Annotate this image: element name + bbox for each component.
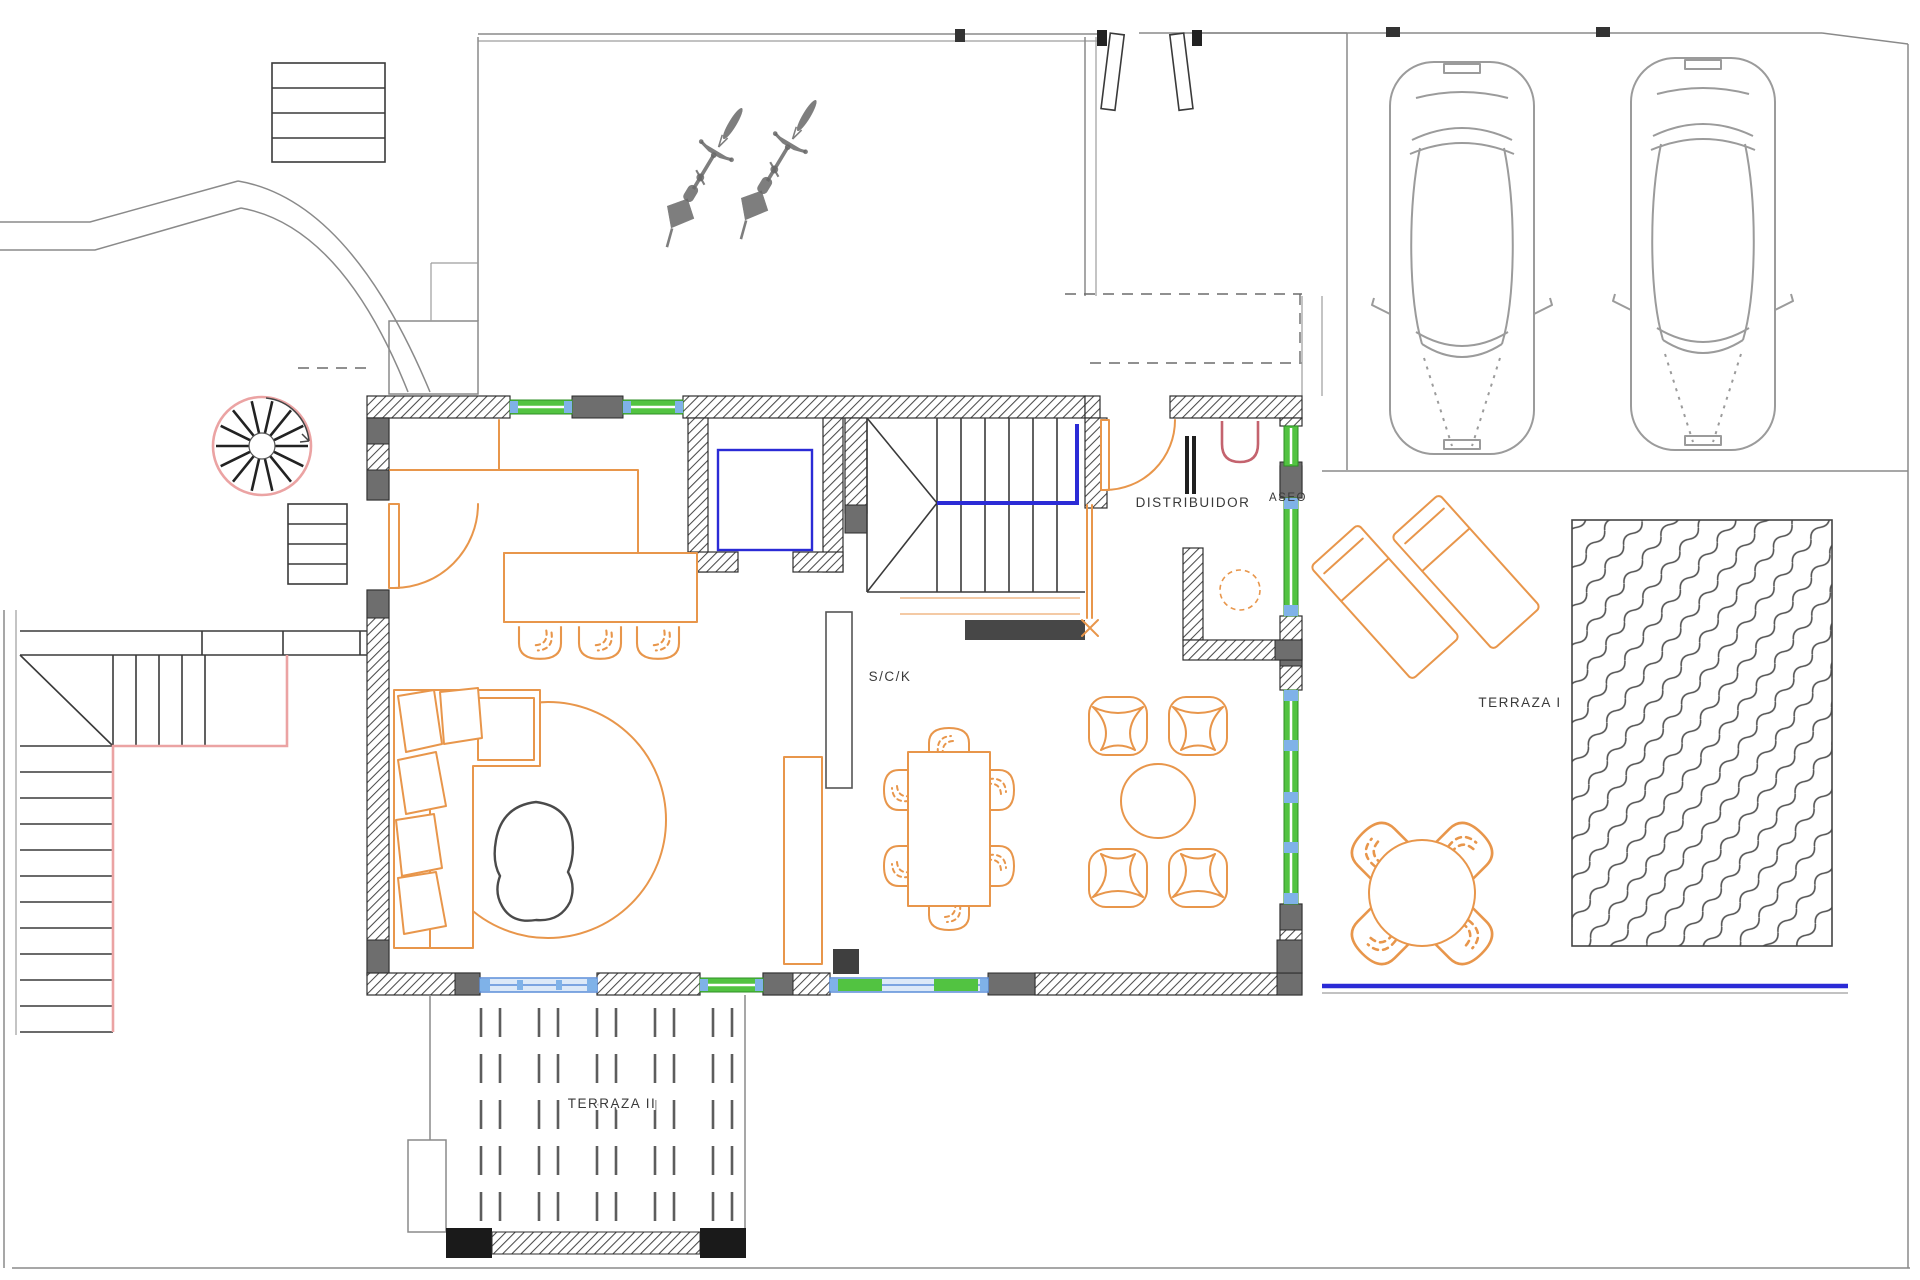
bar-stools bbox=[519, 626, 679, 659]
fence-post bbox=[1386, 27, 1400, 37]
decking bbox=[452, 1000, 742, 1226]
spiral-staircase bbox=[213, 368, 367, 495]
label-distribuidor: DISTRIBUIDOR bbox=[1136, 495, 1251, 510]
car-1 bbox=[1372, 62, 1552, 454]
stair-edge-pink bbox=[113, 655, 287, 1032]
curved-wall-inner bbox=[241, 208, 408, 392]
parking-area bbox=[1322, 33, 1908, 471]
terrace-1: TERRAZA I bbox=[1310, 494, 1848, 993]
sun-lounger-1 bbox=[1310, 524, 1459, 680]
washbasin bbox=[1222, 421, 1258, 462]
living-area bbox=[394, 612, 859, 974]
entry-door bbox=[389, 504, 478, 588]
dining-table bbox=[908, 752, 990, 906]
floor-plan-drawing: DISTRIBUIDOR ASEO bbox=[0, 0, 1920, 1280]
paving bbox=[1572, 520, 1832, 946]
terrace-2: TERRAZA II bbox=[408, 995, 746, 1258]
stair-railing bbox=[937, 424, 1077, 503]
floor-plan: DISTRIBUIDOR ASEO bbox=[0, 0, 1920, 1280]
armchair-group bbox=[1089, 697, 1227, 907]
exterior-staircase bbox=[20, 631, 367, 1032]
fence-post bbox=[1596, 27, 1610, 37]
label-terraza-1: TERRAZA I bbox=[1478, 695, 1561, 710]
toilet bbox=[1220, 570, 1260, 610]
understair-halfwall bbox=[965, 620, 1085, 640]
coffee-table bbox=[495, 802, 573, 921]
kitchen-island bbox=[504, 553, 697, 622]
duct bbox=[826, 612, 852, 788]
window-bottom-left bbox=[480, 978, 597, 992]
terrace-step bbox=[408, 1140, 446, 1232]
side-table bbox=[1121, 764, 1195, 838]
hall-door bbox=[1101, 420, 1175, 490]
terrace-table-set bbox=[1344, 815, 1500, 972]
wall-tick bbox=[955, 29, 965, 42]
porch-dashed-outline bbox=[1065, 294, 1322, 396]
window-bottom-green bbox=[700, 978, 763, 992]
elevator bbox=[718, 450, 812, 550]
dining-set bbox=[884, 728, 1014, 930]
sideboard bbox=[784, 757, 822, 964]
window-right-sink bbox=[1284, 426, 1298, 466]
main-staircase bbox=[867, 418, 1085, 614]
curved-wall-outer bbox=[238, 181, 430, 392]
window-top-1 bbox=[510, 400, 572, 414]
pillar-freestanding bbox=[833, 949, 859, 974]
window-right-aseo bbox=[1284, 498, 1298, 616]
kitchen bbox=[390, 420, 697, 659]
upper-left-steps bbox=[272, 63, 385, 162]
distribuidor: DISTRIBUIDOR bbox=[1082, 420, 1258, 636]
label-aseo: ASEO bbox=[1269, 492, 1307, 504]
elevator-shaft bbox=[718, 450, 812, 550]
storage-room bbox=[389, 37, 1096, 394]
window-right-living bbox=[1284, 690, 1298, 904]
gate-doors bbox=[1097, 30, 1202, 110]
window-bottom-wide bbox=[830, 978, 988, 992]
label-terraza-2: TERRAZA II bbox=[568, 1096, 657, 1111]
label-sck: S/C/K bbox=[869, 669, 912, 684]
entry-steps bbox=[288, 504, 347, 584]
sun-lounger-2 bbox=[1391, 494, 1540, 650]
window-top-2 bbox=[623, 400, 683, 414]
bicycle-1 bbox=[644, 98, 759, 253]
car-2 bbox=[1613, 58, 1793, 450]
